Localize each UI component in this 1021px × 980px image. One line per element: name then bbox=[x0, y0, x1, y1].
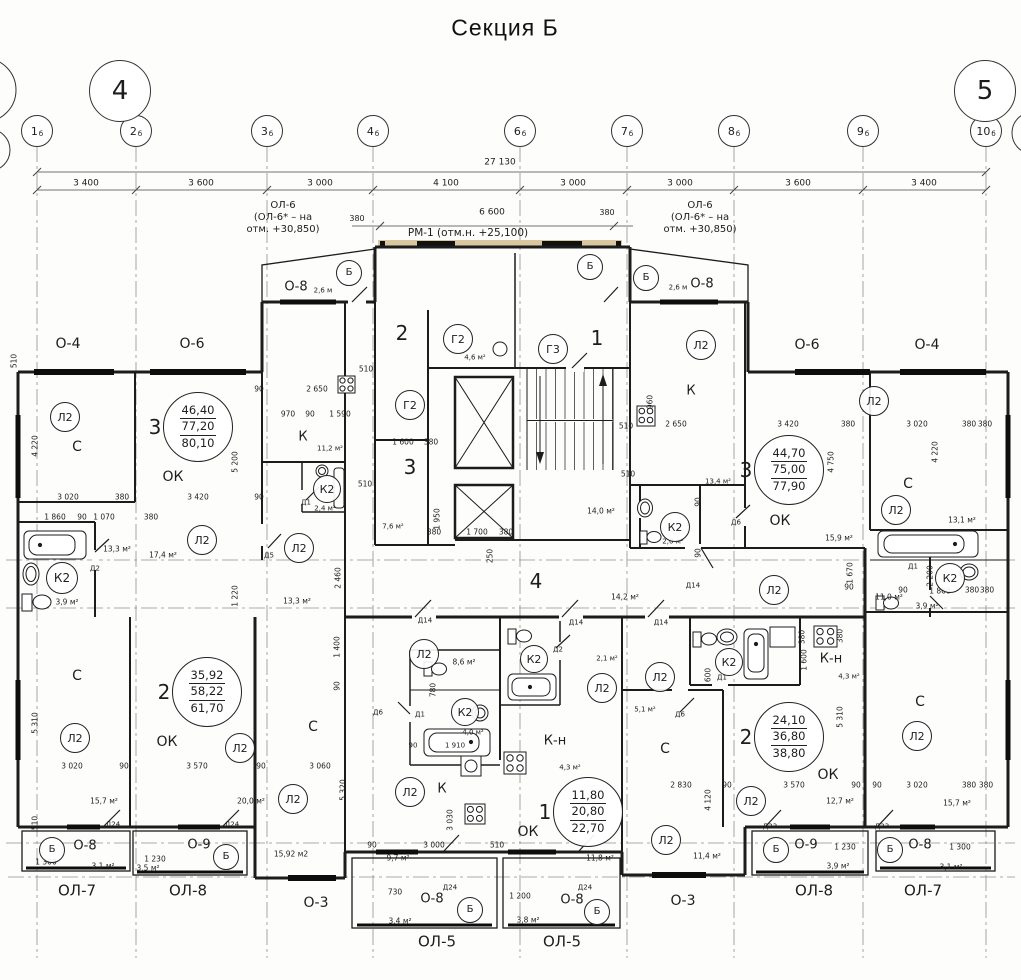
annotation-text: 15,7 м² bbox=[90, 797, 118, 805]
annotation-text: О-3 bbox=[671, 894, 696, 908]
annotation-text: 1 950 bbox=[433, 508, 441, 529]
annotation-text: 90 bbox=[367, 841, 377, 849]
total-area: 22,70 bbox=[570, 821, 607, 837]
annotation-text: 15,92 м2 bbox=[274, 850, 308, 858]
total-area: 77,90 bbox=[771, 479, 808, 495]
annotation-text: 3 020 bbox=[61, 762, 82, 770]
annotation-text: 2 650 bbox=[665, 420, 686, 428]
cabinet-icon bbox=[770, 627, 795, 647]
annotation-text: 90 bbox=[333, 681, 341, 691]
annotation-text: 380 bbox=[499, 528, 513, 536]
annotation-text: С bbox=[72, 669, 82, 683]
label-circle-Л2: Л2 bbox=[60, 723, 90, 753]
label-circle-К2: К2 bbox=[660, 512, 690, 542]
annotation-text: 2,6 м bbox=[314, 288, 333, 295]
label-circle-Л2: Л2 bbox=[50, 402, 80, 432]
bathtub-icon bbox=[508, 674, 556, 700]
annotation-text: О-8 bbox=[420, 893, 443, 906]
annotation-text: 4,3 м² bbox=[559, 765, 580, 772]
axis-marker-1б: 1б bbox=[21, 115, 53, 147]
label-circle-К2: К2 bbox=[935, 563, 965, 593]
annotation-text: 1 220 bbox=[231, 585, 239, 606]
annotation-text: отм. +30,850) bbox=[663, 225, 736, 235]
annotation-text: 3 000 bbox=[423, 841, 444, 849]
annotation-text: 15,9 м² bbox=[825, 534, 853, 542]
annotation-text: ОЛ-6 bbox=[270, 201, 295, 211]
annotation-text: 90 bbox=[898, 586, 908, 594]
overall-dimension: 27 130 bbox=[484, 159, 516, 168]
bathtub-icon bbox=[744, 629, 768, 679]
annotation-text: 2 830 bbox=[670, 781, 691, 789]
stove-icon bbox=[504, 752, 526, 774]
annotation-text: 90 bbox=[851, 781, 861, 789]
sink-icon bbox=[23, 563, 39, 585]
annotation-text: 3 060 bbox=[309, 762, 330, 770]
annotation-text: 11,4 м² bbox=[693, 852, 721, 860]
annotation-text: 90 bbox=[722, 781, 732, 789]
label-circle-К2: К2 bbox=[715, 648, 743, 676]
label-circle-Б: Б bbox=[877, 837, 903, 863]
annotation-text: 90 bbox=[256, 762, 266, 770]
axis-marker-9б: 9б bbox=[847, 115, 879, 147]
annotation-text: О-9 bbox=[187, 839, 210, 852]
living-area: 35,92 bbox=[189, 668, 226, 685]
label-circle-К2: К2 bbox=[520, 645, 548, 673]
axis-spacing-dimension: 3 000 bbox=[307, 180, 333, 189]
annotation-text: 3,9 м² bbox=[827, 862, 850, 870]
axis-marker-7б: 7б bbox=[611, 115, 643, 147]
label-circle-К2: К2 bbox=[313, 475, 341, 503]
annotation-text: К-н bbox=[820, 653, 842, 666]
annotation-text: 1 910 bbox=[445, 743, 465, 750]
annotation-text: 2 bbox=[396, 323, 409, 343]
annotation-text: О-4 bbox=[56, 337, 81, 351]
annotation-text: 4,6 м² bbox=[464, 355, 485, 362]
annotation-text: ОЛ-8 bbox=[795, 884, 833, 899]
annotation-text: отм. +30,850) bbox=[246, 225, 319, 235]
annotation-text: 1 200 bbox=[509, 892, 530, 900]
annotation-text: Д1 bbox=[415, 712, 425, 719]
annotation-text: 5 320 bbox=[339, 779, 347, 800]
annotation-text: 3 020 bbox=[57, 493, 78, 501]
annotation-text: 90 bbox=[694, 548, 702, 558]
annotation-text: 3,5 м² bbox=[137, 864, 160, 872]
annotation-text: 970 bbox=[281, 410, 295, 418]
annotation-text: К bbox=[437, 783, 446, 796]
annotation-text: 3 570 bbox=[783, 781, 804, 789]
annotation-text: 380 bbox=[349, 215, 364, 223]
label-circle-Г2: Г2 bbox=[443, 324, 473, 354]
annotation-text: О-8 bbox=[284, 281, 307, 294]
label-circle-Б: Б bbox=[584, 899, 610, 925]
annotation-text: 90 bbox=[254, 385, 264, 393]
annotation-text: 5,1 м² bbox=[634, 707, 655, 714]
apartment-area: 75,00 bbox=[771, 462, 808, 479]
annotation-text: 4 120 bbox=[704, 789, 712, 810]
annotation-text: 1 400 bbox=[333, 636, 341, 657]
axis-spacing-dimension: 3 000 bbox=[667, 180, 693, 189]
label-circle-Б: Б bbox=[336, 260, 362, 286]
stair-up-arrow bbox=[599, 374, 607, 386]
annotation-text: Д24 bbox=[443, 885, 457, 892]
annotation-text: ОК bbox=[518, 825, 539, 839]
sink-icon bbox=[717, 629, 737, 645]
annotation-text: ОЛ-7 bbox=[904, 884, 942, 899]
annotation-text: 960 bbox=[646, 395, 654, 409]
annotation-text: 1 600 bbox=[800, 649, 808, 670]
apartment-rooms-count: 1 bbox=[539, 802, 552, 822]
annotation-text: Д24 bbox=[106, 822, 120, 829]
annotation-text: 4,0 м² bbox=[462, 730, 483, 737]
annotation-text: Д24 bbox=[225, 822, 239, 829]
annotation-text: 5 310 bbox=[836, 706, 844, 727]
section-marker-5: 5 bbox=[954, 60, 1016, 122]
dimension-lines bbox=[33, 168, 990, 230]
annotation-text: 380 bbox=[115, 493, 129, 501]
annotation-text: 380 bbox=[599, 209, 614, 217]
label-circle-Л2: Л2 bbox=[284, 533, 314, 563]
annotation-text: О-8 bbox=[690, 278, 713, 291]
annotation-text: 510 bbox=[31, 816, 39, 830]
annotation-text: 13,1 м² bbox=[948, 516, 976, 524]
toilet-icon bbox=[640, 531, 661, 544]
total-area: 61,70 bbox=[189, 701, 226, 717]
annotation-text: 4 220 bbox=[31, 435, 39, 456]
annotation-text: 3,9 м² bbox=[56, 598, 79, 606]
annotation-text: 1 300 bbox=[949, 843, 970, 851]
axis-marker-4б: 4б bbox=[357, 115, 389, 147]
annotation-text: Д14 bbox=[654, 620, 668, 627]
annotation-text: К bbox=[298, 431, 307, 444]
annotation-text: С bbox=[308, 720, 318, 734]
annotation-text: ОЛ-6 bbox=[687, 201, 712, 211]
annotation-text: 4 220 bbox=[931, 441, 939, 462]
annotation-text: 7,6 м² bbox=[382, 524, 403, 531]
apartment-stamp: 35,9258,2261,70 bbox=[172, 657, 242, 727]
washer-icon bbox=[461, 756, 481, 776]
annotation-text: 3 570 bbox=[186, 762, 207, 770]
annotation-text: 6 600 bbox=[479, 209, 505, 218]
axis-spacing-dimension: 3 600 bbox=[785, 180, 811, 189]
label-circle-Л2: Л2 bbox=[881, 495, 911, 525]
apartment-rooms-count: 2 bbox=[158, 682, 171, 702]
annotation-text: 380 bbox=[978, 420, 992, 428]
annotation-text: 13,3 м² bbox=[103, 545, 131, 553]
annotation-text: Д14 bbox=[686, 583, 700, 590]
label-circle-Б: Б bbox=[577, 254, 603, 280]
annotation-text: 2 460 bbox=[334, 567, 342, 588]
plan-linework bbox=[0, 0, 1021, 980]
elevator-shafts bbox=[455, 377, 513, 538]
apartment-rooms-count: 3 bbox=[149, 417, 162, 437]
apartment-area: 58,22 bbox=[189, 684, 226, 701]
annotation-text: 20,0 м² bbox=[237, 797, 265, 805]
annotation-text: 4 bbox=[530, 571, 543, 591]
annotation-text: РМ-1 (отм.н. +25,100) bbox=[408, 228, 528, 239]
section-marker-4: 4 bbox=[89, 60, 151, 122]
annotation-text: 90 bbox=[409, 743, 418, 750]
edge-axis-circles bbox=[0, 58, 1021, 171]
annotation-text: ОК bbox=[163, 470, 184, 484]
staircase bbox=[527, 368, 613, 470]
axis-marker-3б: 3б bbox=[251, 115, 283, 147]
annotation-text: 2,1 м² bbox=[596, 656, 617, 663]
label-circle-Г3: Г3 bbox=[538, 334, 568, 364]
annotation-text: 13,3 м² bbox=[283, 597, 311, 605]
annotation-text: О-8 bbox=[560, 894, 583, 907]
label-circle-К2: К2 bbox=[46, 562, 78, 594]
annotation-text: ОЛ-5 bbox=[543, 935, 581, 950]
living-area: 24,10 bbox=[771, 713, 808, 730]
annotation-text: ОЛ-5 bbox=[418, 935, 456, 950]
toilet-icon bbox=[22, 594, 51, 611]
annotation-text: Д14 bbox=[569, 620, 583, 627]
label-circle-Л2: Л2 bbox=[395, 777, 425, 807]
annotation-text: 510 bbox=[359, 365, 373, 373]
annotation-text: 3,9 м² bbox=[916, 602, 939, 610]
label-circle-Л2: Л2 bbox=[225, 733, 255, 763]
annotation-text: Д23 bbox=[763, 824, 777, 831]
annotation-text: 730 bbox=[388, 888, 402, 896]
annotation-text: 380 bbox=[980, 586, 994, 594]
floor-plan-canvas: Секция Б 3806 600380ОЛ-6(ОЛ-6* – наотм. … bbox=[0, 0, 1021, 980]
annotation-text: 3 420 bbox=[187, 493, 208, 501]
annotation-text: 510 bbox=[490, 841, 504, 849]
annotation-text: 780 bbox=[429, 683, 437, 697]
annotation-text: К bbox=[686, 385, 695, 398]
annotation-text: Д2 bbox=[553, 647, 563, 654]
annotation-text: 380 bbox=[841, 420, 855, 428]
annotation-text: 11,0 м² bbox=[875, 593, 903, 601]
axis-spacing-dimension: 3 600 bbox=[188, 180, 214, 189]
annotation-text: 510 bbox=[619, 422, 633, 430]
total-area: 80,10 bbox=[180, 436, 217, 452]
annotation-text: 510 bbox=[621, 470, 635, 478]
label-circle-Б: Б bbox=[457, 897, 483, 923]
bathtub-icon bbox=[24, 531, 86, 559]
annotation-text: 4 750 bbox=[827, 451, 835, 472]
apartment-stamp: 11,8020,8022,70 bbox=[553, 777, 623, 847]
annotation-text: С bbox=[915, 695, 925, 709]
annotation-text: ОК bbox=[818, 768, 839, 782]
annotation-text: 1 070 bbox=[93, 513, 114, 521]
annotation-text: 510 bbox=[358, 480, 372, 488]
annotation-text: 12,7 м² bbox=[826, 797, 854, 805]
annotation-text: 380 bbox=[836, 629, 844, 643]
annotation-text: 5 310 bbox=[31, 712, 39, 733]
annotation-text: О-3 bbox=[304, 896, 329, 910]
label-circle-Б: Б bbox=[763, 837, 789, 863]
label-circle-Б: Б bbox=[213, 844, 239, 870]
apartment-stamp: 44,7075,0077,90 bbox=[754, 435, 824, 505]
annotation-text: О-8 bbox=[908, 839, 931, 852]
annotation-text: О-8 bbox=[73, 840, 96, 853]
annotation-text: 14,0 м² bbox=[587, 507, 615, 515]
annotation-text: ОЛ-8 bbox=[169, 884, 207, 899]
annotation-text: О-4 bbox=[915, 338, 940, 352]
apartment-rooms-count: 2 bbox=[740, 727, 753, 747]
annotation-text: 3 420 bbox=[777, 420, 798, 428]
annotation-text: 3,1 м² bbox=[940, 863, 963, 871]
annotation-text: 380 bbox=[965, 586, 979, 594]
stove-icon bbox=[814, 626, 837, 647]
stove-icon bbox=[465, 804, 485, 824]
annotation-text: О-6 bbox=[180, 337, 205, 351]
annotation-text: 1 700 bbox=[466, 528, 487, 536]
annotation-text: 380 bbox=[962, 781, 976, 789]
label-circle-Л2: Л2 bbox=[587, 673, 617, 703]
apartment-area: 20,80 bbox=[570, 804, 607, 821]
label-circle-Л2: Л2 bbox=[278, 784, 308, 814]
toilet-icon bbox=[693, 632, 717, 647]
label-circle-Л2: Л2 bbox=[651, 825, 681, 855]
annotation-text: 380 bbox=[798, 630, 806, 644]
annotation-text: 380 bbox=[424, 438, 438, 446]
annotation-text: 90 bbox=[694, 497, 702, 507]
apartment-rooms-count: 3 bbox=[740, 460, 753, 480]
annotation-text: 380 bbox=[962, 420, 976, 428]
annotation-text: 3 020 bbox=[906, 781, 927, 789]
annotation-text: 90 bbox=[844, 583, 854, 591]
annotation-text: Д6 bbox=[731, 520, 741, 527]
annotation-text: (ОЛ-6* – на bbox=[671, 213, 729, 223]
living-area: 11,80 bbox=[570, 788, 607, 805]
stair-down-arrow bbox=[536, 452, 544, 464]
annotation-text: 2 650 bbox=[306, 385, 327, 393]
annotation-text: 17,4 м² bbox=[149, 551, 177, 559]
annotation-text: Д6 bbox=[373, 710, 383, 717]
annotation-text: 600 bbox=[704, 668, 712, 682]
living-area: 44,70 bbox=[771, 446, 808, 463]
label-circle-Л2: Л2 bbox=[187, 525, 217, 555]
annotation-text: Д1 bbox=[908, 564, 918, 571]
annotation-text: 3,1 м² bbox=[92, 862, 115, 870]
annotation-text: Д5 bbox=[264, 553, 274, 560]
apartment-area: 36,80 bbox=[771, 729, 808, 746]
annotation-text: 2,6 м bbox=[669, 285, 688, 292]
bathtub-icon bbox=[878, 531, 978, 557]
stove-icon bbox=[338, 376, 355, 393]
annotation-text: (ОЛ-6* – на bbox=[254, 213, 312, 223]
annotation-text: 90 bbox=[305, 410, 315, 418]
label-circle-Л2: Л2 bbox=[409, 639, 439, 669]
annotation-text: 2,4 м² bbox=[314, 506, 335, 513]
annotation-text: Д24 bbox=[578, 885, 592, 892]
annotation-text: 11,2 м² bbox=[317, 446, 343, 453]
annotation-text: 3 bbox=[404, 457, 417, 477]
label-circle-Л2: Л2 bbox=[902, 721, 932, 751]
annotation-text: 250 bbox=[486, 549, 494, 563]
axis-spacing-dimension: 3 400 bbox=[911, 180, 937, 189]
label-circle-Л2: Л2 bbox=[859, 386, 889, 416]
annotation-text: 510 bbox=[10, 354, 18, 368]
annotation-text: 8,6 м² bbox=[453, 658, 476, 666]
annotation-text: 13,4 м² bbox=[705, 479, 731, 486]
annotation-text: 4,3 м² bbox=[838, 674, 859, 681]
annotation-text: ОК bbox=[770, 514, 791, 528]
apartment-area: 77,20 bbox=[180, 419, 217, 436]
annotation-text: 9,7 м² bbox=[387, 854, 410, 862]
annotation-text: 90 bbox=[119, 762, 129, 770]
annotation-text: О-9 bbox=[794, 839, 817, 852]
annotation-text: О-6 bbox=[795, 338, 820, 352]
apartment-stamp: 46,4077,2080,10 bbox=[163, 392, 233, 462]
annotation-text: ОК bbox=[157, 735, 178, 749]
annotation-text: 1 590 bbox=[329, 410, 350, 418]
annotation-text: К-н bbox=[544, 735, 566, 748]
annotation-text: 1 670 bbox=[846, 562, 854, 583]
annotation-text: 1 bbox=[591, 328, 604, 348]
annotation-text: 3 020 bbox=[906, 420, 927, 428]
living-area: 46,40 bbox=[180, 403, 217, 420]
annotation-text: Д2 bbox=[90, 566, 100, 573]
annotation-text: 2 200 bbox=[926, 565, 934, 586]
label-circle-Г2: Г2 bbox=[395, 390, 425, 420]
annotation-text: 15,7 м² bbox=[943, 799, 971, 807]
annotation-text: 90 bbox=[77, 513, 87, 521]
annotation-text: ОЛ-7 bbox=[58, 884, 96, 899]
total-area: 38,80 bbox=[771, 746, 808, 762]
annotation-text: С bbox=[903, 477, 913, 491]
annotation-text: Д23 bbox=[875, 824, 889, 831]
label-circle-Б: Б bbox=[39, 837, 65, 863]
annotation-text: 3,4 м² bbox=[389, 917, 412, 925]
annotation-text: 1 600 bbox=[392, 438, 413, 446]
label-circle-К2: К2 bbox=[451, 698, 479, 726]
garbage-chute-icon bbox=[493, 342, 507, 356]
annotation-text: 14,2 м² bbox=[611, 593, 639, 601]
annotation-text: 3 030 bbox=[446, 809, 454, 830]
label-circle-Л2: Л2 bbox=[686, 330, 716, 360]
drawing-title: Секция Б bbox=[451, 15, 558, 42]
annotation-text: Д6 bbox=[675, 712, 685, 719]
annotation-text: 380 bbox=[144, 513, 158, 521]
label-circle-Л2: Л2 bbox=[736, 786, 766, 816]
axis-spacing-dimension: 3 400 bbox=[73, 180, 99, 189]
annotation-text: 5 200 bbox=[231, 451, 239, 472]
annotation-text: 11,8 м² bbox=[586, 854, 614, 862]
label-circle-Л2: Л2 bbox=[645, 662, 675, 692]
annotation-text: 3,8 м² bbox=[517, 916, 540, 924]
label-circle-Л2: Л2 bbox=[759, 575, 789, 605]
annotation-text: 1 860 bbox=[44, 513, 65, 521]
annotation-text: 1 230 bbox=[144, 855, 165, 863]
axis-marker-6б: 6б bbox=[504, 115, 536, 147]
annotation-text: 90 bbox=[254, 493, 264, 501]
annotation-text: Д14 bbox=[418, 618, 432, 625]
annotation-text: С bbox=[660, 742, 670, 756]
annotation-text: 1 230 bbox=[834, 843, 855, 851]
axis-spacing-dimension: 3 000 bbox=[560, 180, 586, 189]
annotation-text: Д1 bbox=[301, 500, 311, 507]
axis-spacing-dimension: 4 100 bbox=[433, 180, 459, 189]
sink-icon bbox=[638, 499, 653, 517]
annotation-text: 90 bbox=[872, 781, 882, 789]
label-circle-Б: Б bbox=[633, 265, 659, 291]
axis-marker-8б: 8б bbox=[718, 115, 750, 147]
annotation-text: С bbox=[72, 440, 82, 454]
apartment-stamp: 24,1036,8038,80 bbox=[754, 702, 824, 772]
annotation-text: 380 bbox=[979, 781, 993, 789]
